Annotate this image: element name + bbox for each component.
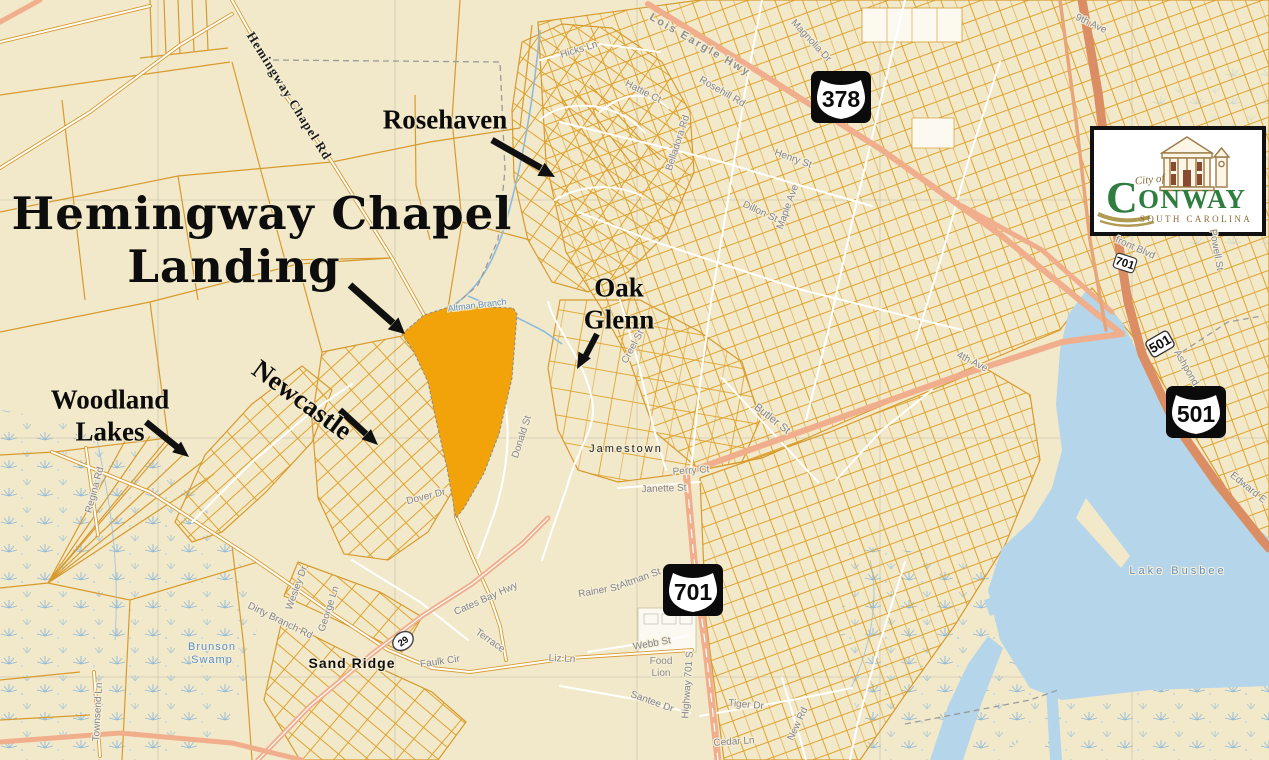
callout-rosehaven: Rosehaven [383, 105, 508, 136]
poi-label-food-lion: Food Lion [650, 656, 673, 680]
logo-state: SOUTH CAROLINA [1140, 214, 1252, 224]
map-title-line1: Hemingway Chapel [12, 187, 513, 240]
us-501-shield: 501 [1166, 386, 1226, 438]
map-title-line2: Landing [0, 240, 484, 293]
water-label-lake-busbee: Lake Busbee [1129, 565, 1226, 577]
us-378-shield: 378 [811, 71, 871, 123]
map: 378 701 501 501 701 29 [0, 0, 1269, 760]
logo-name-initial: C [1106, 173, 1138, 222]
callout-woodland-lakes: Woodland Lakes [51, 384, 170, 449]
place-label-sand-ridge: Sand Ridge [308, 655, 395, 671]
us-701-shield: 701 [663, 564, 723, 616]
water-label-brunson-swamp: Brunson Swamp [188, 641, 236, 667]
road-label-liz-ln: Liz Ln [548, 653, 575, 665]
us-501-shield-number: 501 [1177, 401, 1216, 427]
us-701-shield-number: 701 [674, 579, 713, 605]
road-label-janette-st: Janette St [641, 483, 686, 496]
place-label-jamestown: Jamestown [589, 443, 663, 455]
map-title: Hemingway Chapel Landing [12, 187, 513, 293]
callout-oak-glenn: Oak Glenn [584, 272, 655, 337]
logo-name-rest: ONWAY [1138, 184, 1247, 214]
conway-logo: City of C ONWAY SOUTH CAROLINA [1092, 128, 1264, 234]
us-378-shield-number: 378 [822, 86, 861, 112]
